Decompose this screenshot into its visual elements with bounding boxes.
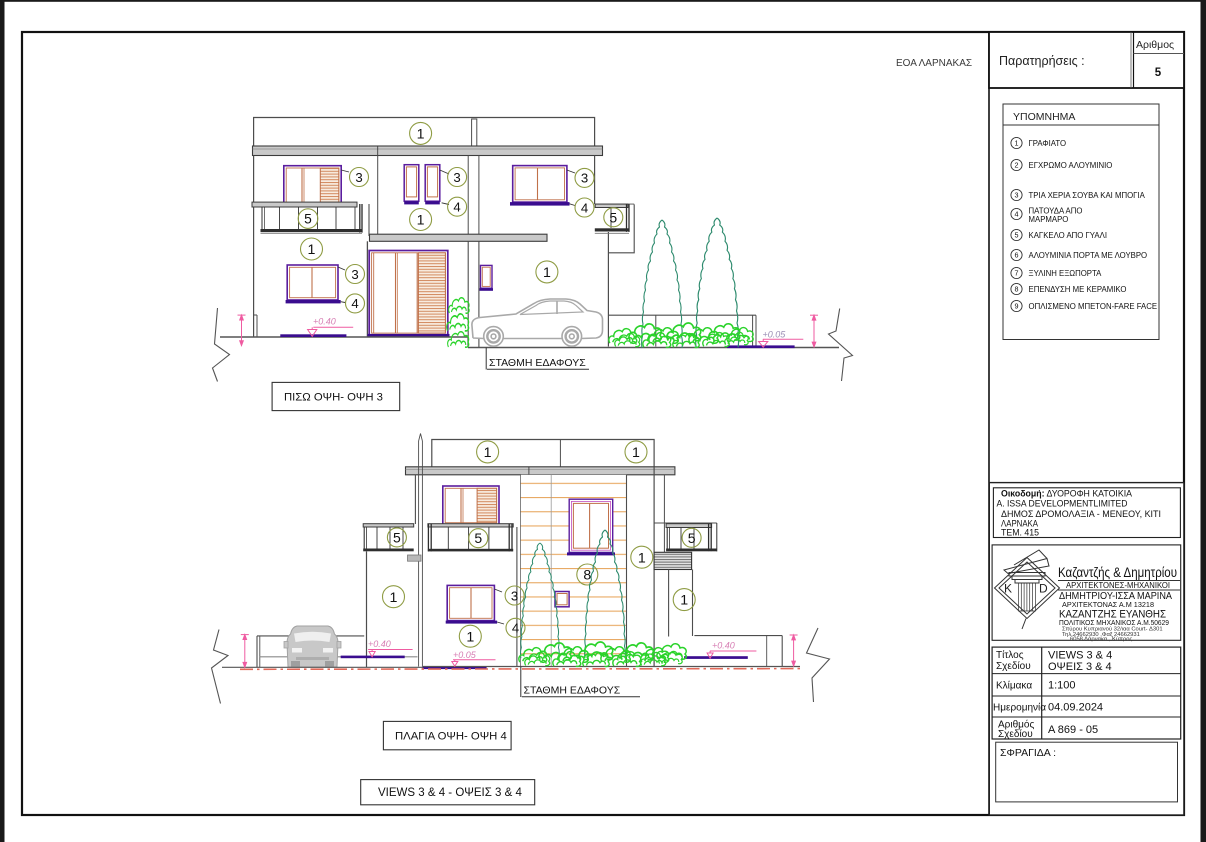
svg-text:ΣΤΑΘΜΗ ΕΔΑΦΟΥΣ: ΣΤΑΘΜΗ ΕΔΑΦΟΥΣ [489, 357, 586, 369]
svg-text:5: 5 [688, 530, 696, 546]
svg-text:Καζαντζής & Δημητρίου: Καζαντζής & Δημητρίου [1058, 565, 1177, 580]
svg-text:Παρατηρήσεις :: Παρατηρήσεις : [999, 54, 1085, 68]
svg-text:1: 1 [543, 265, 551, 281]
svg-text:+0.40: +0.40 [712, 641, 735, 651]
svg-text:5: 5 [304, 212, 312, 227]
svg-text:8: 8 [1015, 285, 1019, 294]
svg-text:+0.40: +0.40 [368, 639, 391, 649]
svg-text:4: 4 [1015, 210, 1019, 219]
svg-text:4: 4 [351, 296, 358, 311]
svg-text:ΥΠΟΜΝΗΜΑ: ΥΠΟΜΝΗΜΑ [1013, 111, 1075, 123]
svg-text:K: K [1004, 582, 1012, 596]
svg-text:ΜΑΡΜΑΡΟ: ΜΑΡΜΑΡΟ [1029, 215, 1069, 224]
svg-text:ΟΠΛΙΣΜΕΝΟ ΜΠΕΤΟΝ-FARE FACE: ΟΠΛΙΣΜΕΝΟ ΜΠΕΤΟΝ-FARE FACE [1029, 302, 1158, 311]
svg-text:ΣΦΡΑΓΙΔΑ :: ΣΦΡΑΓΙΔΑ : [1000, 747, 1056, 759]
svg-text:5: 5 [609, 209, 617, 225]
svg-text:9: 9 [1015, 302, 1019, 311]
svg-text:+0.05: +0.05 [763, 330, 787, 340]
svg-text:ΠΑΤΟΥΔΑ ΑΠΟ: ΠΑΤΟΥΔΑ ΑΠΟ [1029, 207, 1083, 216]
svg-text:ΔΗΜΟΣ ΔΡΟΜΟΛΑΞΙΑ - ΜΕΝΕΟΥ, ΚΙΤ: ΔΗΜΟΣ ΔΡΟΜΟΛΑΞΙΑ - ΜΕΝΕΟΥ, ΚΙΤΙ [1001, 509, 1161, 519]
svg-text:4: 4 [512, 621, 519, 636]
svg-text:ΣΤΑΘΜΗ ΕΔΑΦΟΥΣ: ΣΤΑΘΜΗ ΕΔΑΦΟΥΣ [524, 685, 621, 697]
svg-text:1: 1 [638, 550, 646, 566]
svg-text:Σχεδίου: Σχεδίου [996, 660, 1031, 672]
svg-text:1: 1 [680, 593, 688, 609]
svg-text:D: D [1039, 582, 1048, 596]
svg-text:3: 3 [355, 170, 362, 185]
svg-text:3: 3 [453, 170, 460, 185]
svg-text:VIEWS 3 & 4 - ΟΨΕΙΣ 3 & 4: VIEWS 3 & 4 - ΟΨΕΙΣ 3 & 4 [378, 787, 523, 799]
svg-text:Ημερομηνία: Ημερομηνία [993, 702, 1046, 714]
svg-text:+0.05: +0.05 [453, 650, 477, 660]
svg-text:1: 1 [390, 590, 398, 606]
svg-text:7: 7 [1015, 269, 1019, 278]
svg-text:ΤΕΜ. 415: ΤΕΜ. 415 [1001, 528, 1039, 538]
svg-text:ΚΑΓΚΕΛΟ ΑΠΟ ΓΥΑΛΙ: ΚΑΓΚΕΛΟ ΑΠΟ ΓΥΑΛΙ [1029, 231, 1108, 240]
svg-text:Κλίμακα: Κλίμακα [996, 680, 1032, 692]
svg-text:3: 3 [1015, 191, 1019, 200]
svg-text:ΕΠΕΝΔΥΣΗ ΜΕ ΚΕΡΑΜΙΚΟ: ΕΠΕΝΔΥΣΗ ΜΕ ΚΕΡΑΜΙΚΟ [1029, 285, 1127, 294]
svg-text:+0.40: +0.40 [313, 317, 336, 327]
svg-text:ΓΡΑΦΙΑΤΟ: ΓΡΑΦΙΑΤΟ [1029, 139, 1067, 148]
svg-text:8: 8 [583, 567, 591, 583]
svg-text:6: 6 [1015, 251, 1019, 260]
svg-text:4: 4 [453, 199, 460, 214]
svg-text:1: 1 [466, 629, 474, 645]
svg-text:3: 3 [511, 588, 518, 603]
svg-text:ΑΡΧΙΤΕΚΤΟΝΕΣ-ΜΗΧΑΝΙΚΟΙ: ΑΡΧΙΤΕΚΤΟΝΕΣ-ΜΗΧΑΝΙΚΟΙ [1066, 581, 1170, 590]
svg-text:1: 1 [308, 242, 316, 258]
svg-text:04.09.2024: 04.09.2024 [1048, 702, 1103, 714]
svg-text:Οικοδομή: ΔΥΟΡΟΦΗ ΚΑΤΟΙΚΙΑ: Οικοδομή: ΔΥΟΡΟΦΗ ΚΑΤΟΙΚΙΑ [1001, 489, 1132, 499]
svg-text:ΠΙΣΩ ΟΨΗ- ΟΨΗ 3: ΠΙΣΩ ΟΨΗ- ΟΨΗ 3 [284, 392, 383, 404]
svg-text:1: 1 [632, 445, 640, 461]
svg-text:Α 869 - 05: Α 869 - 05 [1048, 724, 1098, 736]
svg-text:1: 1 [1015, 139, 1019, 148]
svg-text:5: 5 [393, 529, 401, 545]
svg-text:3: 3 [581, 171, 588, 186]
svg-text:5: 5 [474, 530, 482, 546]
svg-text:1:100: 1:100 [1048, 680, 1076, 692]
svg-text:ΞΥΛΙΝΗ ΕΞΩΠΟΡΤΑ: ΞΥΛΙΝΗ ΕΞΩΠΟΡΤΑ [1029, 269, 1103, 278]
svg-text:ΑΛΟΥΜΙΝΙΑ ΠΟΡΤΑ ΜΕ ΛΟΥΒΡΟ: ΑΛΟΥΜΙΝΙΑ ΠΟΡΤΑ ΜΕ ΛΟΥΒΡΟ [1029, 251, 1148, 260]
svg-text:3: 3 [351, 267, 358, 282]
svg-text:4: 4 [581, 200, 588, 215]
svg-text:Τίτλος: Τίτλος [996, 649, 1024, 661]
svg-text:6058 Λάρνακα , Κύπρος: 6058 Λάρνακα , Κύπρος [1070, 636, 1133, 643]
svg-text:Σχεδίου: Σχεδίου [998, 728, 1033, 740]
svg-text:ΤΡΙΑ ΧΕΡΙΑ ΣΟΥΒΑ ΚΑΙ ΜΠΟΓΙΑ: ΤΡΙΑ ΧΕΡΙΑ ΣΟΥΒΑ ΚΑΙ ΜΠΟΓΙΑ [1029, 191, 1146, 200]
svg-text:ΕΟΑ ΛΑΡΝΑΚΑΣ: ΕΟΑ ΛΑΡΝΑΚΑΣ [896, 58, 972, 69]
svg-text:A. ISSA DEVELOPMENTLIMITED: A. ISSA DEVELOPMENTLIMITED [997, 499, 1128, 509]
svg-text:ΟΨΕΙΣ 3 & 4: ΟΨΕΙΣ 3 & 4 [1048, 661, 1112, 673]
svg-text:1: 1 [417, 213, 425, 229]
svg-text:ΠΛΑΓΙΑ ΟΨΗ- ΟΨΗ 4: ΠΛΑΓΙΑ ΟΨΗ- ΟΨΗ 4 [395, 731, 507, 743]
svg-text:5: 5 [1155, 67, 1162, 79]
svg-text:2: 2 [1015, 161, 1019, 170]
svg-text:1: 1 [417, 127, 425, 143]
svg-text:5: 5 [1015, 231, 1019, 240]
svg-text:1: 1 [484, 445, 492, 461]
svg-text:VIEWS 3 & 4: VIEWS 3 & 4 [1048, 650, 1112, 662]
svg-text:Αριθμος: Αριθμος [1136, 39, 1174, 51]
svg-text:ΕΓΧΡΩΜΟ ΑΛΟΥΜΙΝΙΟ: ΕΓΧΡΩΜΟ ΑΛΟΥΜΙΝΙΟ [1029, 161, 1113, 170]
